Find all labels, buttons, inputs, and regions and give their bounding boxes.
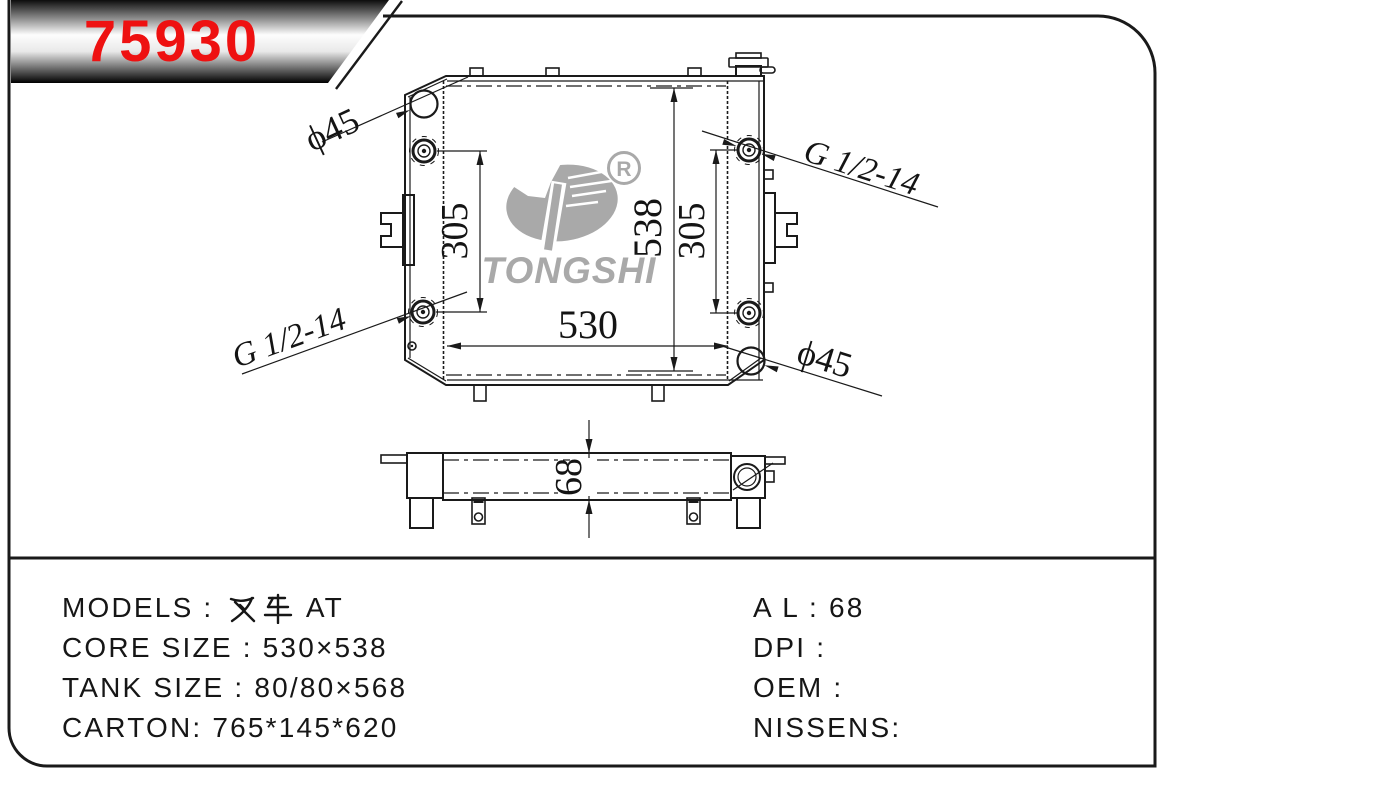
port-top-left: [410, 137, 439, 166]
spec-table-right: A L : 68 DPI : OEM : NISSENS:: [753, 588, 901, 748]
profile-brackets: [472, 498, 700, 524]
models-label: MODELS :: [62, 592, 223, 624]
spec-tank-size: TANK SIZE : 80/80×568: [62, 668, 407, 708]
part-number: 75930: [84, 9, 260, 74]
callout-hole-top-left: ϕ45: [298, 77, 468, 159]
filler-neck: [729, 53, 775, 76]
port-bottom-right: [735, 299, 764, 328]
spec-nissens: NISSENS:: [753, 708, 901, 748]
hole-top-left: [411, 91, 438, 118]
pitch-right-value: 305: [671, 203, 713, 260]
spec-al: A L : 68: [753, 588, 901, 628]
spec-dpi: DPI :: [753, 628, 901, 668]
models-value-rest: AT: [297, 592, 344, 624]
core-height-value: 538: [625, 198, 670, 258]
registered-letter: R: [616, 158, 631, 181]
dimension-core-width: 530: [447, 302, 728, 350]
dimension-thickness: 68: [548, 420, 597, 538]
core-width-value: 530: [558, 302, 618, 347]
datasheet-page: 75930 R TONGSHI: [0, 0, 1399, 792]
callout-thread-bottom-left: G 1/2-14: [227, 292, 467, 376]
hole-bottom-right-label: ϕ45: [793, 331, 857, 386]
thread-bottom-left-label: G 1/2-14: [227, 301, 350, 375]
callout-hole-bottom-right: ϕ45: [722, 331, 882, 396]
callout-thread-top-right: G 1/2-14: [702, 131, 938, 207]
spec-carton: CARTON: 765*145*620: [62, 708, 407, 748]
dimension-pitch-left: 305: [434, 151, 487, 312]
part-number-banner: 75930: [11, 0, 402, 89]
spec-oem: OEM :: [753, 668, 901, 708]
spec-models: MODELS : AT: [62, 588, 407, 628]
models-cjk-glyphs: [227, 592, 293, 624]
spec-core-size: CORE SIZE : 530×538: [62, 628, 407, 668]
thickness-value: 68: [548, 458, 590, 496]
hole-top-left-label: ϕ45: [298, 100, 365, 159]
spec-table-left: MODELS : AT CORE SIZE : 530×538 TANK SIZ…: [62, 588, 407, 748]
thread-top-right-label: G 1/2-14: [800, 133, 924, 203]
pitch-left-value: 305: [434, 203, 476, 260]
